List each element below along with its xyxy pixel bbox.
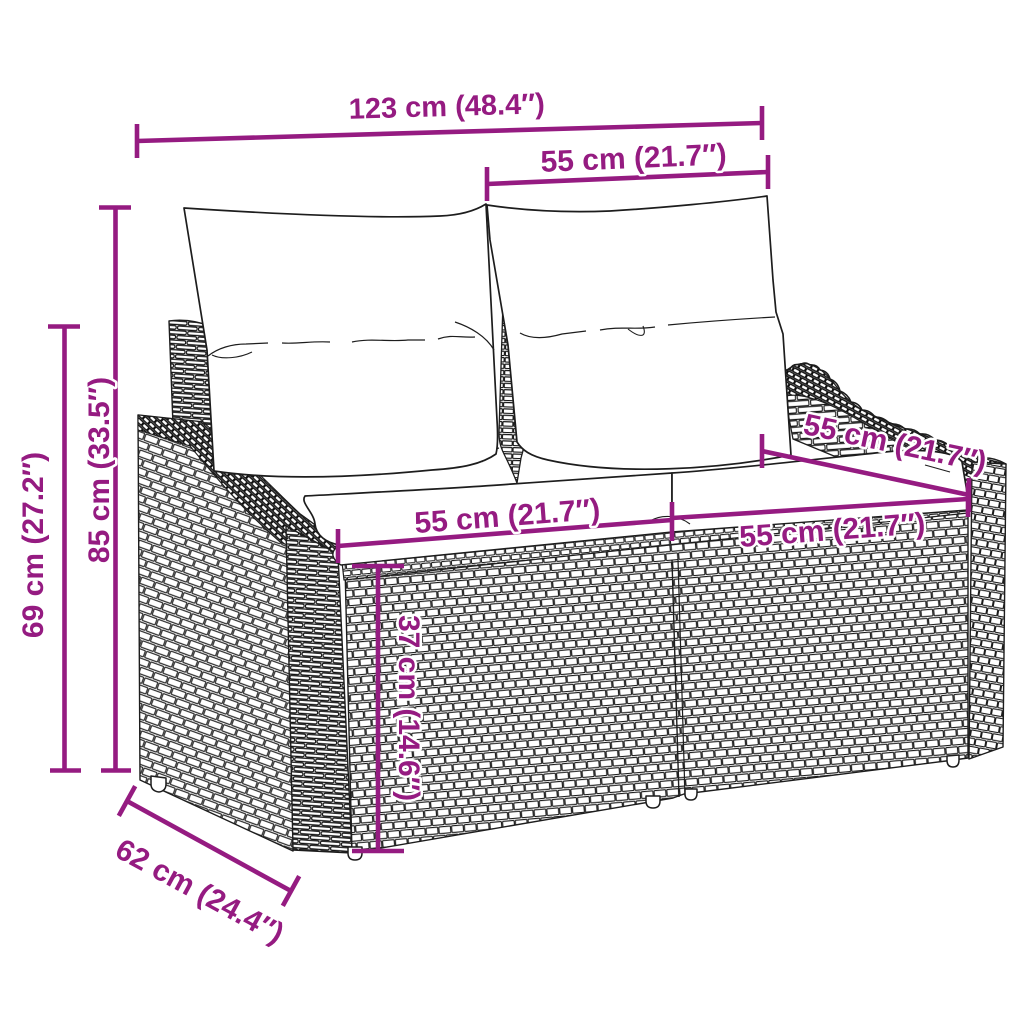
svg-text:69 cm (27.2″): 69 cm (27.2″) (17, 452, 50, 638)
svg-text:37 cm (14.6″): 37 cm (14.6″) (392, 615, 425, 801)
svg-text:62 cm (24.4″): 62 cm (24.4″) (110, 833, 289, 951)
svg-text:123 cm (48.4″): 123 cm (48.4″) (348, 88, 545, 125)
svg-text:85 cm (33.5″): 85 cm (33.5″) (83, 377, 116, 563)
